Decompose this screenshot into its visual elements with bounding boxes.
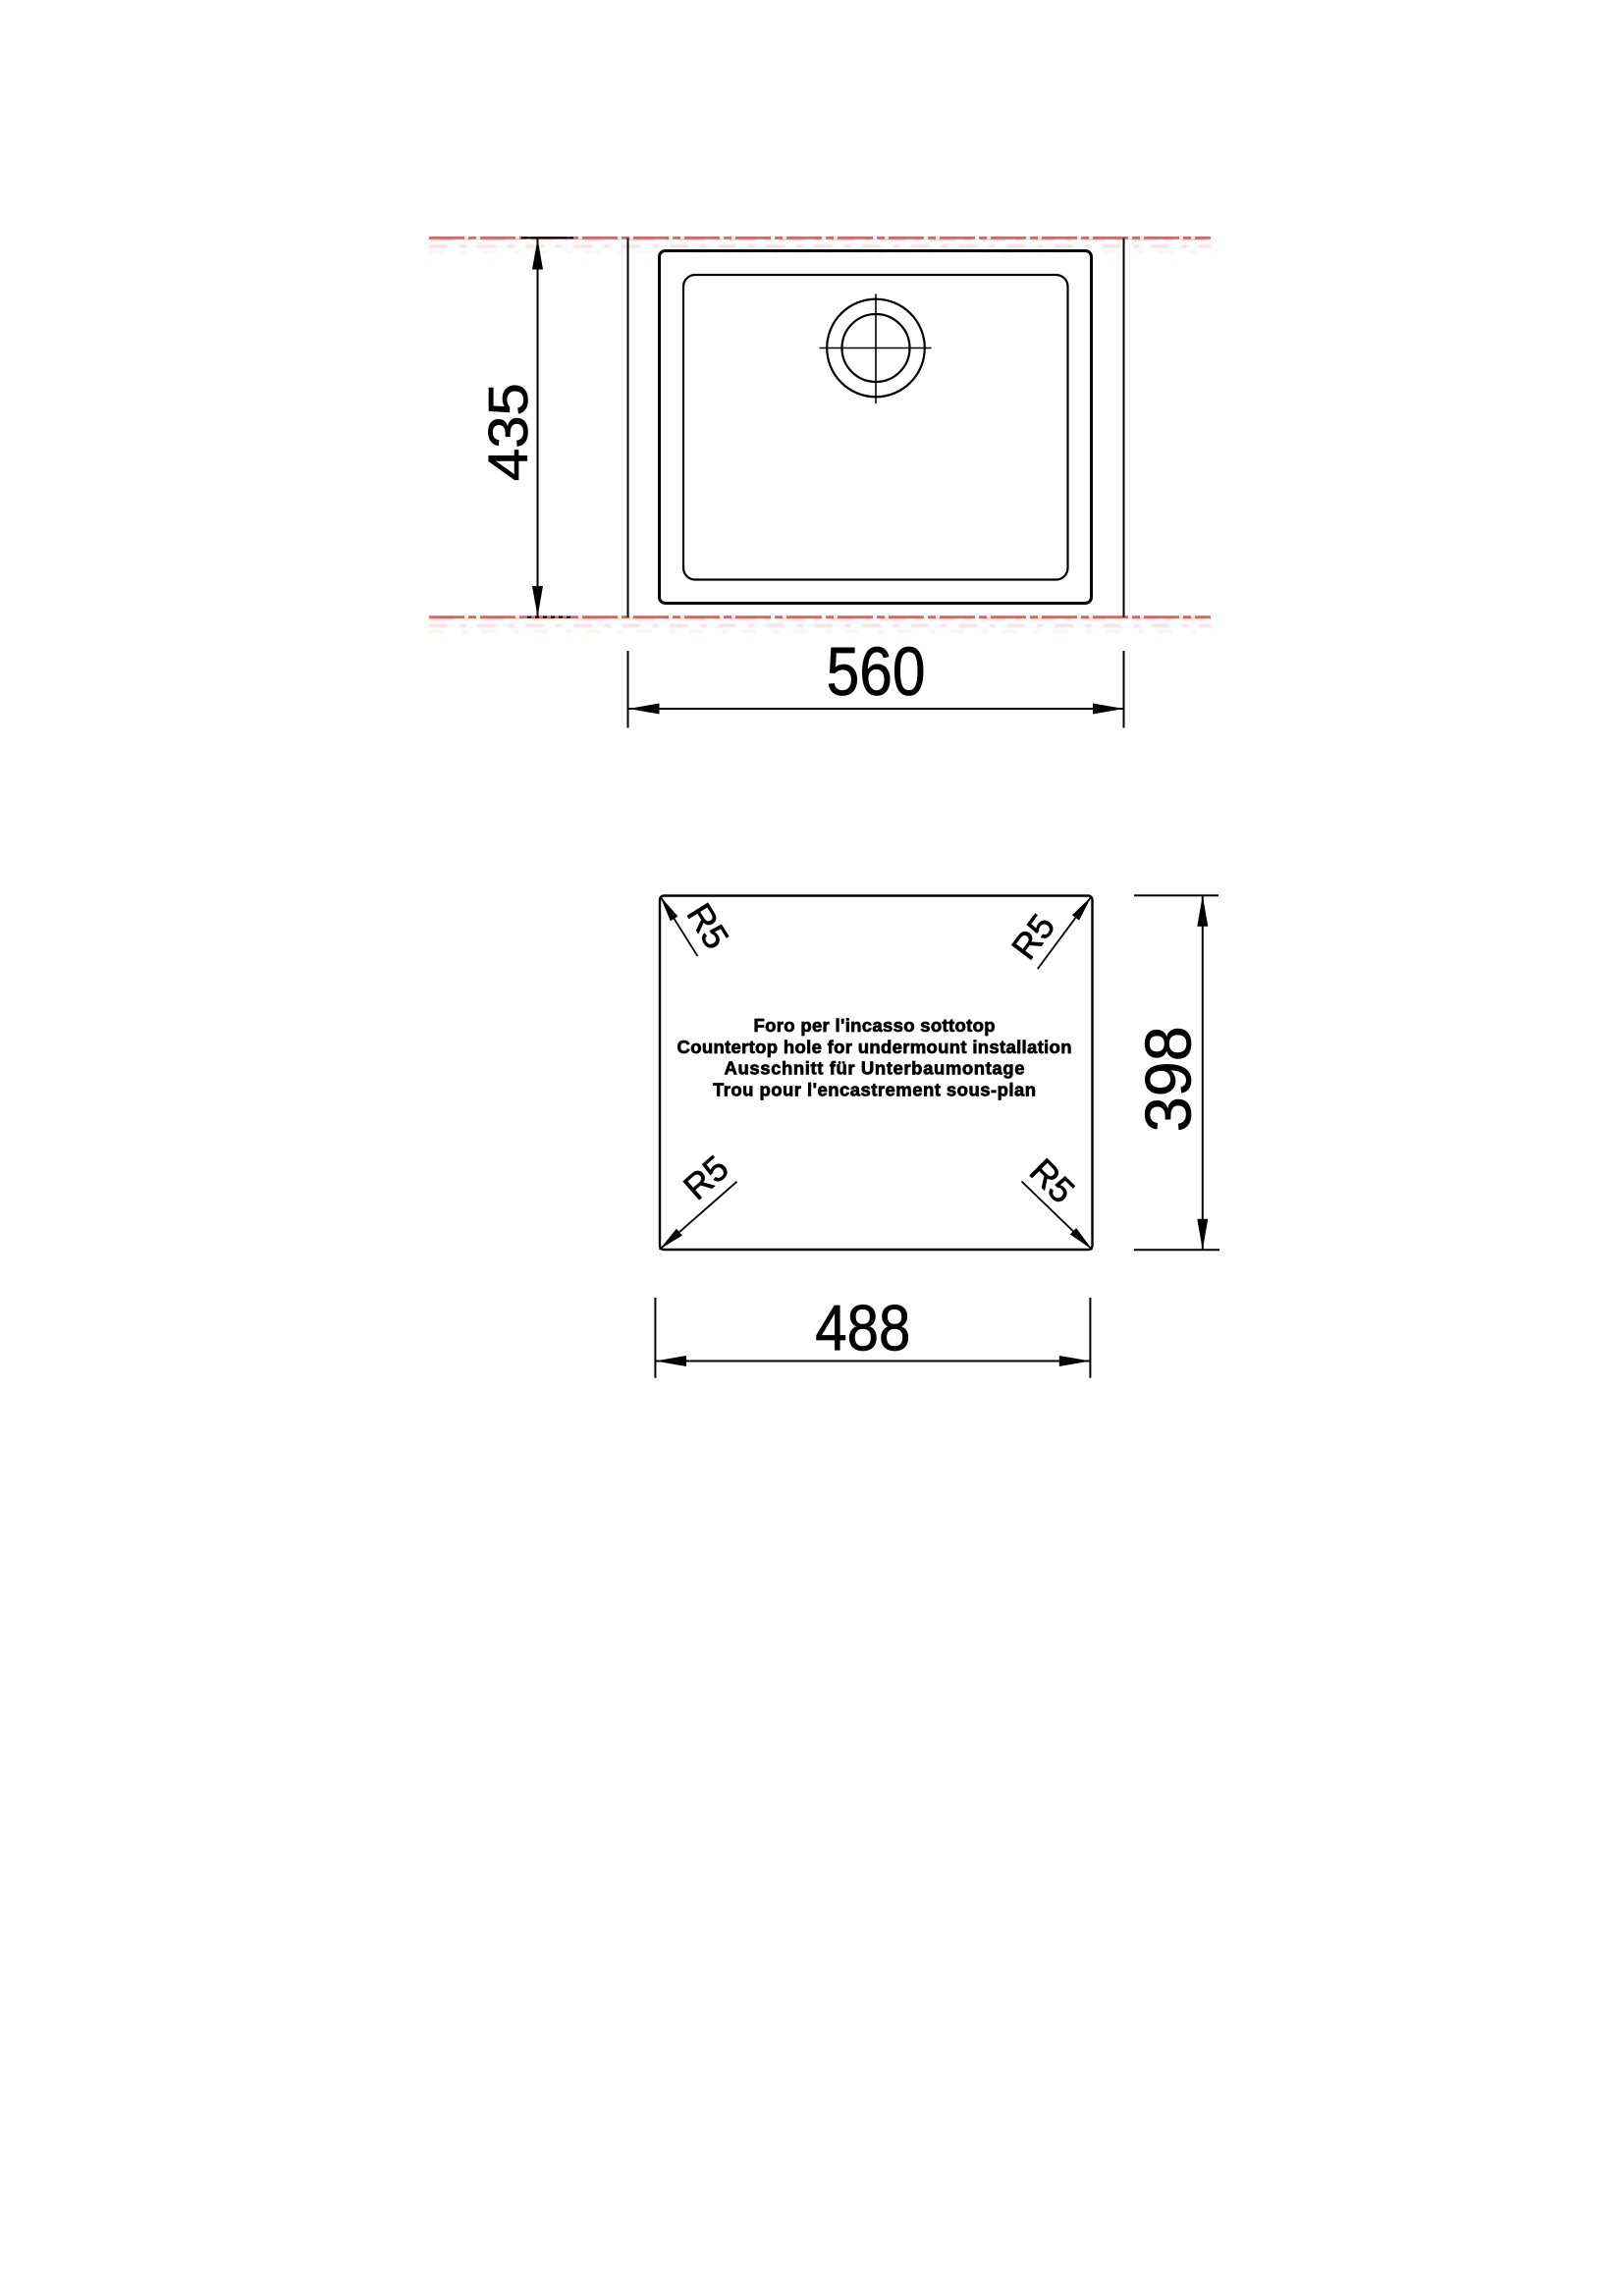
svg-text:R5: R5 bbox=[1003, 906, 1062, 966]
svg-text:Ausschnitt für Unterbaumontage: Ausschnitt für Unterbaumontage bbox=[725, 1058, 1025, 1079]
svg-text:R5: R5 bbox=[676, 1148, 736, 1207]
svg-text:435: 435 bbox=[477, 383, 540, 481]
svg-text:Countertop hole for undermount: Countertop hole for undermount installat… bbox=[677, 1037, 1072, 1057]
svg-text:560: 560 bbox=[827, 633, 926, 710]
svg-text:Foro per l'incasso sottotop: Foro per l'incasso sottotop bbox=[754, 1015, 996, 1036]
svg-text:R5: R5 bbox=[679, 896, 737, 956]
svg-text:398: 398 bbox=[1132, 1026, 1205, 1132]
svg-text:488: 488 bbox=[815, 1292, 910, 1364]
svg-text:R5: R5 bbox=[1022, 1150, 1083, 1211]
svg-text:Trou pour l'encastrement sous-: Trou pour l'encastrement sous-plan bbox=[713, 1079, 1036, 1099]
